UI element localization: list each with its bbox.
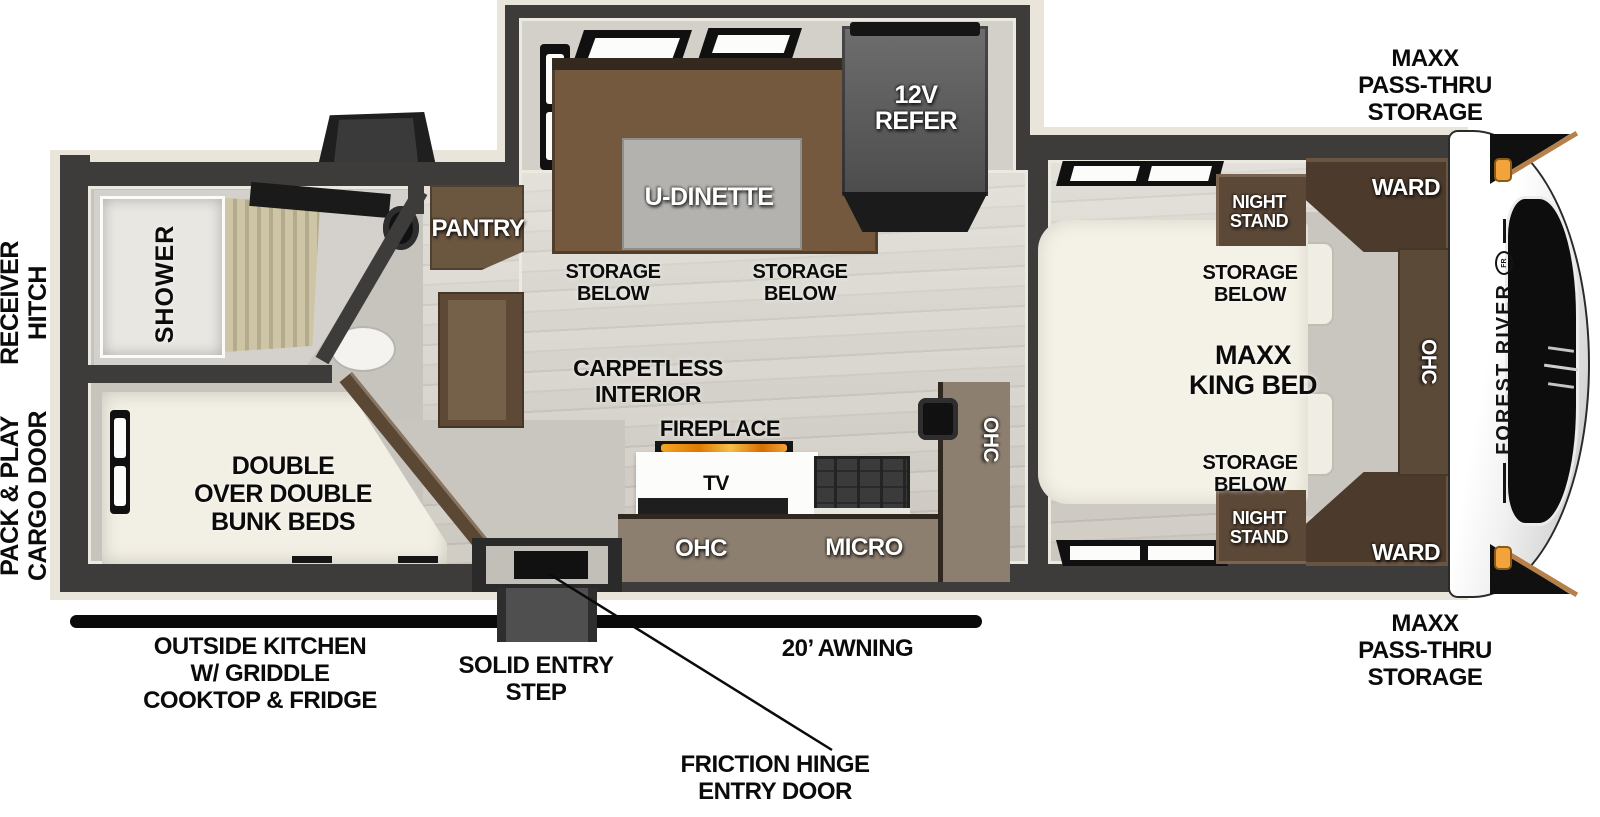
entry-step bbox=[497, 588, 597, 642]
night-stand-label-top: NIGHT STAND bbox=[1199, 193, 1319, 231]
king-bed-label: MAXX KING BED bbox=[1133, 340, 1373, 400]
refrigerator-base bbox=[842, 192, 988, 232]
decal-line bbox=[1503, 219, 1506, 243]
storage-below-label-bed-bottom: STORAGE BELOW bbox=[1190, 452, 1310, 497]
carpetless-interior-label: CARPETLESS INTERIOR bbox=[548, 356, 748, 408]
storage-below-label-dinette-right: STORAGE BELOW bbox=[740, 261, 860, 306]
bunk-beds-label: DOUBLE OVER DOUBLE BUNK BEDS bbox=[143, 452, 423, 536]
storage-below-label-dinette-left: STORAGE BELOW bbox=[553, 261, 673, 306]
forest-river-logo-icon: FR bbox=[1495, 251, 1513, 275]
brand-decal: FOREST RIVER FR bbox=[1491, 191, 1517, 531]
pass-thru-label-bottom: MAXX PASS-THRU STORAGE bbox=[1295, 611, 1555, 692]
tv-label: TV bbox=[676, 472, 756, 496]
wall-top-bedroom bbox=[1028, 135, 1462, 160]
stove-cooktop bbox=[814, 456, 910, 514]
outside-kitchen-label: OUTSIDE KITCHEN W/ GRIDDLE COOKTOP & FRI… bbox=[105, 634, 415, 715]
marker-light-top bbox=[1494, 158, 1512, 182]
tv-credenza bbox=[638, 498, 788, 514]
entry-door-frame bbox=[514, 551, 588, 579]
slide-window-top-2 bbox=[698, 28, 802, 60]
wall-bath-bottom bbox=[88, 365, 332, 383]
night-stand-label-bottom: NIGHT STAND bbox=[1199, 509, 1319, 547]
wall-left bbox=[60, 155, 90, 592]
decal-line bbox=[1503, 463, 1506, 503]
refrigerator-top bbox=[850, 22, 980, 36]
bedroom-window-top bbox=[1056, 161, 1224, 186]
ward-label-top: WARD bbox=[1346, 175, 1466, 199]
pantry-label: PANTRY bbox=[408, 216, 548, 241]
pass-thru-label-top: MAXX PASS-THRU STORAGE bbox=[1295, 46, 1555, 127]
fireplace-label: FIREPLACE bbox=[640, 417, 800, 442]
ward-label-bottom: WARD bbox=[1346, 540, 1466, 564]
kitchen-sink bbox=[918, 398, 958, 440]
brand-text: FOREST RIVER bbox=[1493, 283, 1516, 455]
awning-label: 20’ AWNING bbox=[745, 636, 950, 663]
storage-below-label-bed-top: STORAGE BELOW bbox=[1190, 262, 1310, 307]
micro-label: MICRO bbox=[794, 535, 934, 560]
solid-entry-step-label: SOLID ENTRY STEP bbox=[436, 653, 636, 707]
ohc-label-kitchen: OHC bbox=[641, 536, 761, 561]
ohc-label-kitchen-side: OHC bbox=[971, 400, 1001, 480]
shower-curtain bbox=[225, 198, 320, 352]
bunk-base-mark bbox=[292, 556, 332, 563]
ohc-label-bedroom: OHC bbox=[1409, 322, 1439, 402]
marker-light-bottom bbox=[1494, 546, 1512, 570]
shower-label: SHOWER bbox=[151, 199, 181, 369]
receiver-hitch-label: RECEIVER HITCH bbox=[0, 218, 52, 388]
refer-label: 12V REFER bbox=[846, 82, 986, 135]
bunk-base-mark bbox=[398, 556, 438, 563]
floorplan-canvas: FOREST RIVER FR SHOWER U-DINETTE 12V REF… bbox=[0, 0, 1600, 817]
cargo-door-label: PACK & PLAY CARGO DOOR bbox=[0, 396, 52, 596]
friction-hinge-label: FRICTION HINGE ENTRY DOOR bbox=[650, 752, 900, 806]
wall-top-left-section bbox=[60, 162, 520, 188]
bunk-window bbox=[110, 410, 130, 514]
wall-bath-right bbox=[408, 184, 424, 214]
tall-cabinet-face bbox=[448, 300, 506, 420]
u-dinette-label: U-DINETTE bbox=[609, 184, 809, 210]
exterior-accessory-panel bbox=[334, 118, 418, 162]
fireplace-flame bbox=[661, 444, 787, 452]
